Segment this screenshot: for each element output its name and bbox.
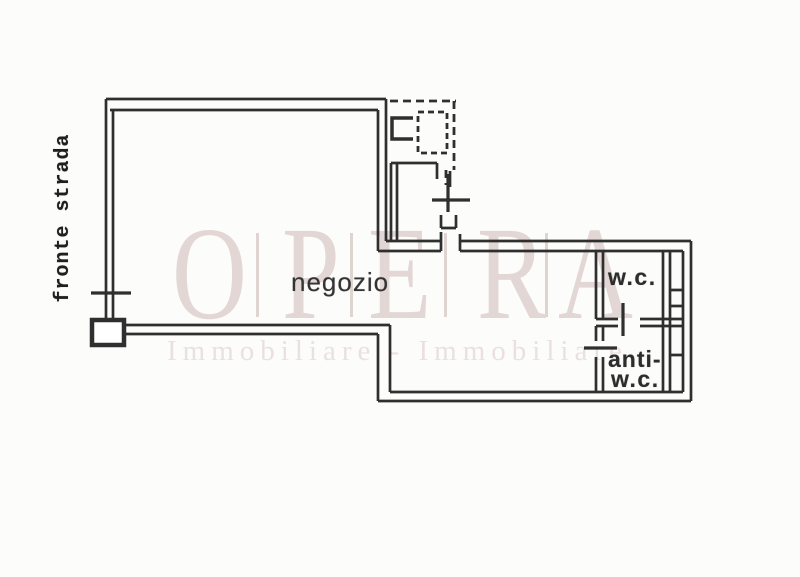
wc-room-label: w.c. [608,266,657,289]
anti-wc-label-line2: w.c. [611,368,660,391]
corner-pillar [92,320,124,345]
shop-room-label: negozio [291,269,389,295]
fixture-outline [392,118,413,139]
scanned-floor-plan-page: O P E R A Immobiliare - Immobiliare [0,0,800,577]
street-front-label: fronte strada [54,133,74,302]
floor-plan-drawing [0,0,800,577]
dashed-overhead-box [418,112,447,153]
opening-ticks [91,174,623,348]
shop-walls-upper [106,99,390,334]
